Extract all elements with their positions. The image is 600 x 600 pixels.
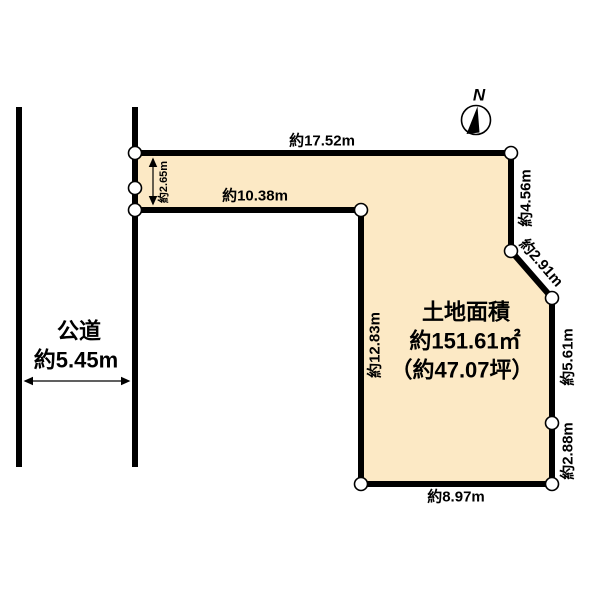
area-size-label: 約151.61㎡	[409, 329, 520, 354]
road-width-label: 約5.45m	[34, 348, 118, 373]
vertex-marker	[129, 204, 142, 217]
road-name-label: 公道	[57, 319, 101, 344]
vertex-marker	[129, 147, 142, 160]
dim-bottom-label: 約8.97m	[427, 488, 485, 506]
dim-strip-inner-label: 約10.38m	[222, 187, 288, 205]
vertex-marker	[355, 478, 368, 491]
vertex-marker	[546, 417, 559, 430]
dim-right-upper-label: 約4.56m	[517, 169, 535, 227]
vertex-marker	[129, 182, 142, 195]
compass: N	[462, 86, 491, 135]
north-label: N	[473, 86, 486, 105]
dim-right-middle-label: 約5.61m	[559, 328, 577, 386]
vertex-marker	[546, 478, 559, 491]
diagram-svg: N 約17.52m 約10.38m 約2.65m 約12.83m 約4.56m …	[0, 0, 600, 600]
area-tsubo-label: （約47.07坪）	[390, 358, 533, 383]
vertex-marker	[546, 292, 559, 305]
dim-top-label: 約17.52m	[289, 132, 355, 150]
vertex-marker	[355, 204, 368, 217]
dim-inner-vertical-label: 約12.83m	[366, 312, 384, 378]
land-plot-diagram: N 約17.52m 約10.38m 約2.65m 約12.83m 約4.56m …	[0, 0, 600, 600]
road-left-boundary-line	[16, 107, 22, 467]
vertex-marker	[505, 147, 518, 160]
dim-right-lower-label: 約2.88m	[559, 422, 577, 480]
dim-strip-depth-label: 約2.65m	[156, 161, 170, 203]
area-title: 土地面積	[422, 300, 511, 325]
